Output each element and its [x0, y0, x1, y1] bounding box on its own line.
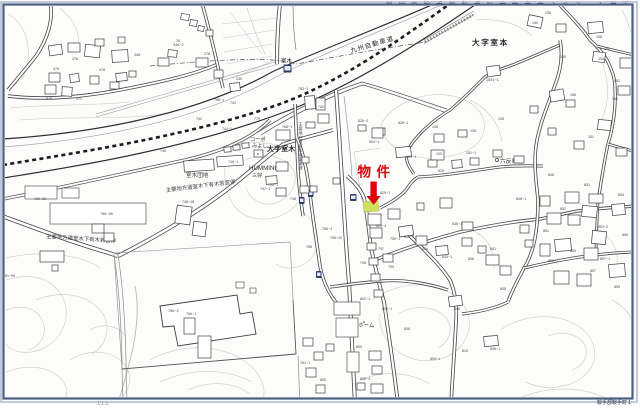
svg-text:825: 825 — [438, 169, 444, 173]
svg-text:828−1: 828−1 — [398, 121, 408, 125]
svg-text:138: 138 — [432, 125, 438, 129]
svg-text:835−1: 835−1 — [442, 255, 452, 259]
svg-text:744−1: 744−1 — [222, 127, 232, 131]
svg-text:846: 846 — [454, 307, 460, 311]
svg-text:859: 859 — [614, 285, 620, 289]
svg-text:149: 149 — [560, 55, 566, 59]
svg-text:798−20: 798−20 — [330, 236, 342, 240]
svg-text:みよし: みよし — [252, 143, 268, 150]
svg-text:798: 798 — [360, 261, 366, 265]
svg-text:781−1: 781−1 — [300, 361, 310, 365]
svg-text:848: 848 — [548, 173, 554, 177]
svg-text:838: 838 — [468, 257, 474, 261]
svg-text:845: 845 — [500, 287, 506, 291]
svg-text:743: 743 — [230, 101, 236, 105]
svg-text:768−1: 768−1 — [282, 125, 292, 129]
svg-text:室木団地: 室木団地 — [186, 171, 209, 179]
svg-text:135: 135 — [498, 117, 504, 121]
svg-text:783−1: 783−1 — [298, 87, 308, 91]
svg-text:158: 158 — [545, 11, 551, 15]
svg-text:808−3: 808−3 — [360, 377, 370, 381]
svg-text:809: 809 — [356, 345, 362, 349]
svg-text:748: 748 — [290, 197, 296, 201]
svg-text:836−1: 836−1 — [452, 222, 462, 226]
svg-text:478: 478 — [99, 68, 105, 72]
svg-text:742: 742 — [196, 117, 202, 121]
svg-text:745: 745 — [160, 149, 166, 153]
svg-text:750−1: 750−1 — [390, 237, 400, 241]
svg-text:834: 834 — [422, 247, 428, 251]
svg-text:81−59: 81−59 — [5, 274, 15, 278]
svg-text:151−1: 151−1 — [466, 151, 476, 155]
svg-text:846−1: 846−1 — [516, 197, 526, 201]
svg-text:138: 138 — [470, 129, 476, 133]
svg-text:829−4: 829−4 — [376, 224, 386, 228]
svg-text:799: 799 — [388, 265, 394, 269]
svg-text:853−2: 853−2 — [598, 225, 608, 229]
svg-text:152: 152 — [614, 79, 620, 83]
svg-text:⊥⊥⊥: ⊥⊥⊥ — [96, 401, 109, 406]
svg-text:105: 105 — [436, 152, 442, 156]
svg-text:848−1: 848−1 — [490, 347, 500, 351]
svg-text:コーポ: コーポ — [250, 135, 266, 143]
svg-text:155: 155 — [532, 21, 538, 25]
svg-text:856: 856 — [622, 233, 628, 237]
svg-text:851: 851 — [543, 229, 549, 233]
svg-text:16: 16 — [176, 39, 180, 43]
svg-text:鞍手郡鞍手町１: 鞍手郡鞍手町１ — [597, 399, 632, 405]
svg-text:物件: 物件 — [358, 164, 396, 180]
svg-text:804−1: 804−1 — [369, 140, 379, 144]
svg-text:156: 156 — [570, 93, 576, 97]
svg-text:830−1: 830−1 — [404, 235, 414, 239]
svg-text:766−1: 766−1 — [186, 312, 196, 316]
svg-text:476: 476 — [72, 57, 78, 61]
svg-text:786−1: 786−1 — [322, 227, 332, 231]
svg-text:766−38: 766−38 — [100, 212, 113, 216]
svg-text:HUMMING: HUMMING — [249, 165, 279, 172]
svg-text:854: 854 — [618, 193, 624, 197]
svg-text:802−1: 802−1 — [360, 297, 370, 301]
svg-text:829−1: 829−1 — [380, 191, 390, 195]
svg-text:858−1: 858−1 — [548, 259, 558, 263]
svg-text:大字室本: 大字室本 — [472, 37, 509, 47]
svg-text:479: 479 — [53, 67, 59, 71]
svg-text:159: 159 — [604, 47, 610, 51]
svg-text:810: 810 — [462, 349, 468, 353]
svg-text:857−1: 857−1 — [600, 257, 610, 261]
svg-text:805: 805 — [320, 378, 326, 382]
svg-text:766−3: 766−3 — [168, 309, 179, 313]
svg-text:161: 161 — [588, 135, 594, 139]
svg-text:470: 470 — [46, 96, 52, 100]
svg-text:800−1: 800−1 — [382, 307, 392, 311]
svg-text:855: 855 — [570, 249, 576, 253]
svg-text:三好: 三好 — [252, 171, 262, 179]
svg-text:239: 239 — [236, 77, 242, 81]
svg-text:348−2: 348−2 — [173, 43, 184, 47]
svg-text:782: 782 — [318, 105, 324, 109]
svg-text:823−1: 823−1 — [406, 155, 416, 159]
svg-text:797: 797 — [378, 247, 384, 251]
svg-text:826−2: 826−2 — [358, 119, 368, 123]
svg-text:808−1: 808−1 — [430, 357, 440, 361]
svg-text:室木: 室木 — [281, 57, 293, 65]
svg-text:857: 857 — [590, 269, 596, 273]
svg-text:853: 853 — [584, 183, 590, 187]
svg-text:806: 806 — [404, 327, 410, 331]
svg-text:160: 160 — [612, 97, 618, 101]
svg-text:348: 348 — [134, 53, 140, 57]
svg-text:798−1: 798−1 — [214, 98, 224, 102]
svg-text:748−18: 748−18 — [182, 200, 194, 204]
svg-text:150: 150 — [598, 57, 604, 61]
svg-text:158: 158 — [596, 35, 602, 39]
svg-text:1551−1: 1551−1 — [486, 78, 499, 82]
svg-text:789−39: 789−39 — [34, 197, 46, 201]
svg-text:278: 278 — [204, 52, 210, 56]
svg-text:746−1: 746−1 — [228, 160, 238, 164]
svg-text:841: 841 — [490, 247, 496, 251]
svg-text:大字室木: 大字室木 — [267, 144, 295, 153]
svg-text:747−1: 747−1 — [260, 187, 270, 191]
svg-text:471: 471 — [76, 97, 82, 101]
svg-text:785: 785 — [306, 245, 312, 249]
svg-text:852: 852 — [560, 207, 566, 211]
svg-text:779: 779 — [254, 117, 260, 121]
